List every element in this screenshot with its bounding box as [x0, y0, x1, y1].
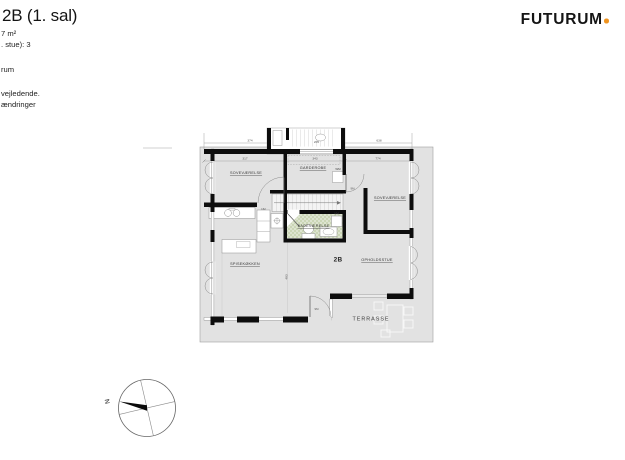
dim-stair: 205 — [314, 140, 319, 144]
washing-machine — [332, 216, 343, 227]
room-label-living: OPHOLDSSTUE — [361, 258, 393, 262]
door-label-terrace: 9M — [315, 307, 320, 311]
room-label-bedroom-right: SOVEVÆRELSE — [374, 196, 406, 200]
room-label-wardrobe: GARDEROBE — [300, 166, 327, 170]
appliance-wm: WM — [335, 167, 341, 171]
fridge-cabinet — [257, 210, 270, 242]
kitchen-sink — [225, 210, 232, 217]
dim-living-vertical: 483 — [285, 274, 289, 279]
compass-north-label: N — [104, 398, 112, 404]
unit-label: 2B — [334, 257, 343, 264]
room-label-bathroom: BADEVÆRELSE — [298, 224, 330, 228]
dim-inner-mid: 343 — [312, 157, 317, 161]
dim-inner-right: 774 — [375, 157, 380, 161]
door-label-hall: 9M — [351, 187, 356, 191]
washer-column — [333, 172, 344, 183]
compass-needle — [120, 402, 148, 411]
room-label-kitchen: SPISEKØKKEN — [230, 262, 260, 266]
room-label-bedroom-left: SOVEVÆRELSE — [230, 171, 262, 175]
dim-inner-left: 317 — [242, 157, 247, 161]
staircase — [272, 194, 343, 212]
door-label-kitchen: 162 — [261, 207, 266, 211]
appliance-vm: VM — [334, 212, 339, 216]
dim-top-left: 374 — [247, 139, 252, 143]
room-label-terrace: TERRASSE — [352, 317, 389, 323]
dim-top-right: 638 — [376, 139, 381, 143]
floor-plan: SOVEVÆRELSE GARDEROBE SOVEVÆRELSE BADEVÆ… — [0, 0, 625, 460]
compass: N — [104, 374, 181, 442]
